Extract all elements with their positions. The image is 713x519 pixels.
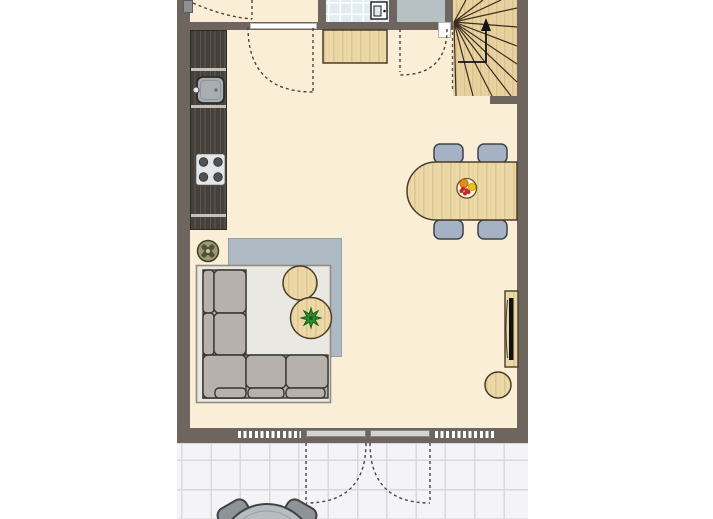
wall-right	[517, 0, 528, 443]
vestibule-door-opening	[438, 22, 451, 38]
rug	[228, 238, 342, 357]
window-left	[238, 431, 301, 438]
wall-stairs-notch	[490, 95, 517, 104]
counter-divider	[191, 214, 226, 217]
counter-divider	[191, 68, 226, 71]
counter-divider	[191, 105, 226, 108]
living-area-floor	[190, 0, 517, 428]
window-right	[435, 431, 495, 438]
front-door	[183, 0, 193, 13]
wall-bathroom	[318, 22, 456, 30]
bathroom-floor	[326, 0, 389, 22]
wall-hall-bath	[318, 0, 326, 22]
wall-bath-vestibule	[389, 0, 397, 22]
french-door-right	[370, 430, 430, 437]
wall-left	[177, 0, 190, 443]
kitchen-counter	[190, 30, 227, 230]
floor-plan-canvas	[0, 0, 713, 519]
vestibule-floor	[397, 0, 445, 24]
french-door-left	[306, 430, 366, 437]
terrace-floor	[177, 443, 528, 519]
hallway-door-opening	[250, 23, 317, 29]
